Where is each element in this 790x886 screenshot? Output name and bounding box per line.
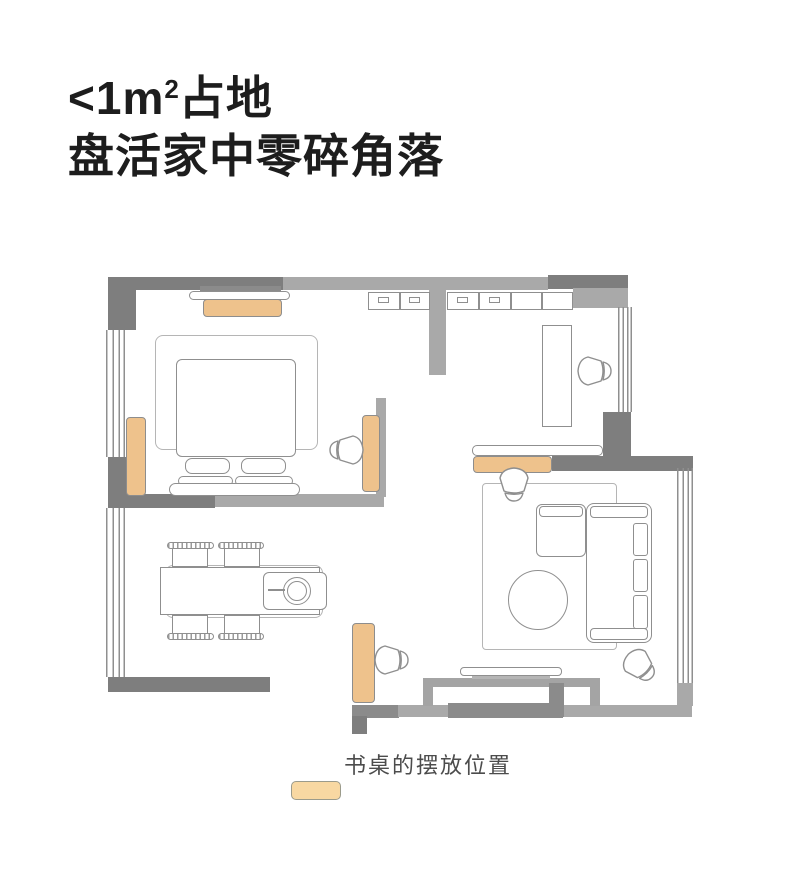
wardrobe-handle (457, 297, 468, 303)
window (618, 307, 632, 412)
tv-niche-frame (423, 687, 433, 706)
tv-niche-frame (423, 678, 600, 687)
bed-pillow (241, 458, 286, 474)
chair-icon (494, 464, 534, 508)
wall-segment (552, 456, 693, 471)
wall-segment (352, 716, 367, 734)
sofa-back-cushion (633, 559, 648, 592)
tv-stand-line (472, 676, 550, 679)
window (677, 468, 693, 683)
bed-pillow (185, 458, 230, 474)
poster: <1m2占地 盘活家中零碎角落 (0, 0, 790, 886)
chair-icon (323, 430, 367, 470)
chair-icon (371, 640, 415, 680)
coffee-table (508, 570, 568, 630)
dining-chair-seat (224, 615, 260, 634)
wall-segment (548, 275, 628, 289)
legend-desk-swatch (291, 781, 341, 800)
wall-segment (108, 277, 136, 330)
wardrobe-divider (541, 292, 543, 310)
wardrobe-divider (478, 292, 480, 310)
wardrobe-divider (510, 292, 512, 310)
desk-position-highlight (126, 417, 146, 496)
chair-icon (611, 637, 670, 696)
wall-segment (448, 703, 563, 718)
wardrobe-divider (399, 292, 401, 310)
wall-segment (108, 677, 270, 692)
stove-burner-inner (287, 581, 307, 601)
dining-chair-seat (224, 548, 260, 567)
tv (460, 667, 562, 676)
wall-segment (108, 494, 215, 508)
sofa-back-cushion (633, 595, 648, 629)
sofa-back-cushion (633, 523, 648, 556)
wall-segment (603, 412, 631, 457)
study-desk (542, 325, 572, 427)
tv-niche-frame (590, 687, 600, 706)
stove-handle (268, 589, 285, 591)
sofa-armrest (590, 506, 648, 518)
window (106, 508, 125, 677)
chair-icon (574, 351, 618, 391)
wardrobe-handle (409, 297, 420, 303)
dining-chair-seat (172, 548, 208, 567)
dining-chair-back (167, 633, 214, 640)
wardrobe-handle (378, 297, 389, 303)
window (106, 330, 125, 457)
wall-segment (429, 277, 446, 375)
dining-chair-back (218, 633, 264, 640)
desk-position-highlight (203, 299, 282, 317)
sofa-chaise-cushion (539, 506, 583, 517)
legend-label: 书桌的摆放位置 (344, 748, 512, 780)
wall-segment (549, 683, 564, 717)
bed-end-bench (169, 483, 300, 496)
dining-chair-seat (172, 615, 208, 634)
wardrobe-handle (489, 297, 500, 303)
wall-segment (563, 705, 692, 717)
wall-segment (573, 288, 628, 308)
wall-segment (398, 705, 448, 717)
wall-segment (283, 277, 548, 290)
wall-segment (677, 683, 693, 706)
shelf (472, 445, 603, 456)
bed (176, 359, 296, 457)
